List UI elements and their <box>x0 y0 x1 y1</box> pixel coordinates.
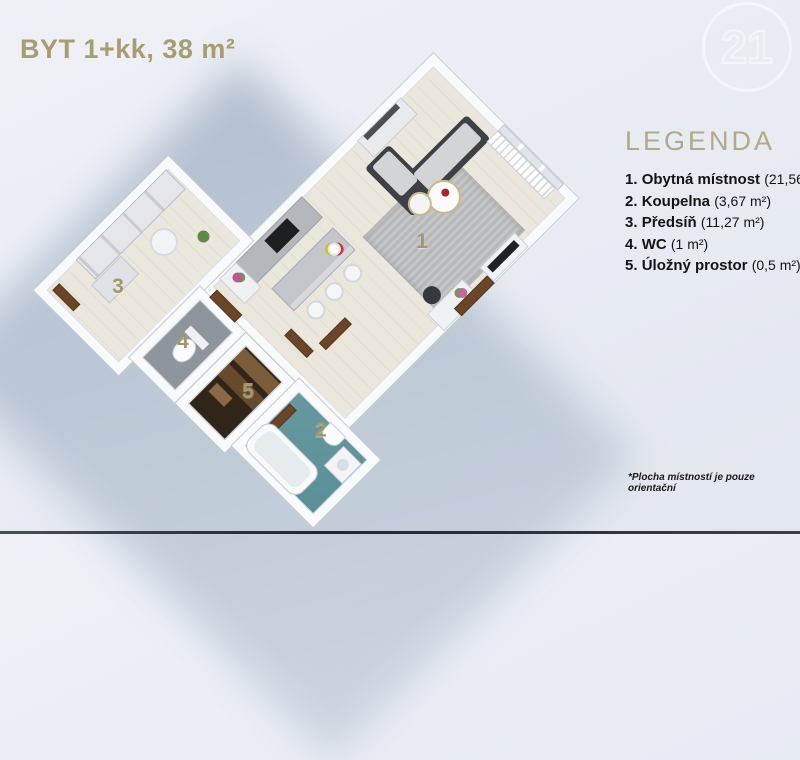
legend-room-name: Koupelna <box>642 193 710 210</box>
legend-num: 3. <box>625 214 638 231</box>
room-label-3: 3 <box>106 275 130 301</box>
legend: LEGENDA 1. Obytná místnost (21,56 m²) 2.… <box>625 126 800 277</box>
legend-room-name: WC <box>642 236 667 253</box>
legend-item-1: 1. Obytná místnost (21,56 m²) <box>625 169 800 191</box>
area-disclaimer-footnote: *Plocha místností je pouze orientační <box>628 472 800 494</box>
legend-room-area: (3,67 m²) <box>714 193 771 209</box>
legend-num: 1. <box>625 171 638 188</box>
room-label-1: 1 <box>410 230 434 256</box>
legend-heading: LEGENDA <box>625 126 800 157</box>
legend-num: 5. <box>625 257 638 274</box>
legend-num: 4. <box>625 236 638 253</box>
legend-room-area: (11,27 m²) <box>701 214 765 230</box>
legend-num: 2. <box>625 193 638 210</box>
floorplan-page: { "title": "BYT 1+kk, 38 m²", "logo": { … <box>0 0 800 534</box>
legend-room-name: Obytná místnost <box>642 171 760 188</box>
legend-item-2: 2. Koupelna (3,67 m²) <box>625 191 800 213</box>
legend-item-5: 5. Úložný prostor (0,5 m²) <box>625 255 800 277</box>
century21-logo-icon: 21 <box>702 2 792 92</box>
legend-item-4: 4. WC (1 m²) <box>625 234 800 256</box>
legend-room-area: (21,56 m²) <box>764 171 800 187</box>
room-label-2: 2 <box>309 419 333 445</box>
legend-room-area: (1 m²) <box>671 236 708 252</box>
room-label-4: 4 <box>171 330 195 356</box>
legend-room-area: (0,5 m²) <box>752 257 800 273</box>
legend-room-name: Úložný prostor <box>642 257 748 274</box>
logo-number: 21 <box>721 20 772 74</box>
legend-item-3: 3. Předsíň (11,27 m²) <box>625 212 800 234</box>
room-label-5: 5 <box>236 380 260 406</box>
legend-room-name: Předsíň <box>642 214 697 231</box>
page-title: BYT 1+kk, 38 m² <box>20 34 235 65</box>
